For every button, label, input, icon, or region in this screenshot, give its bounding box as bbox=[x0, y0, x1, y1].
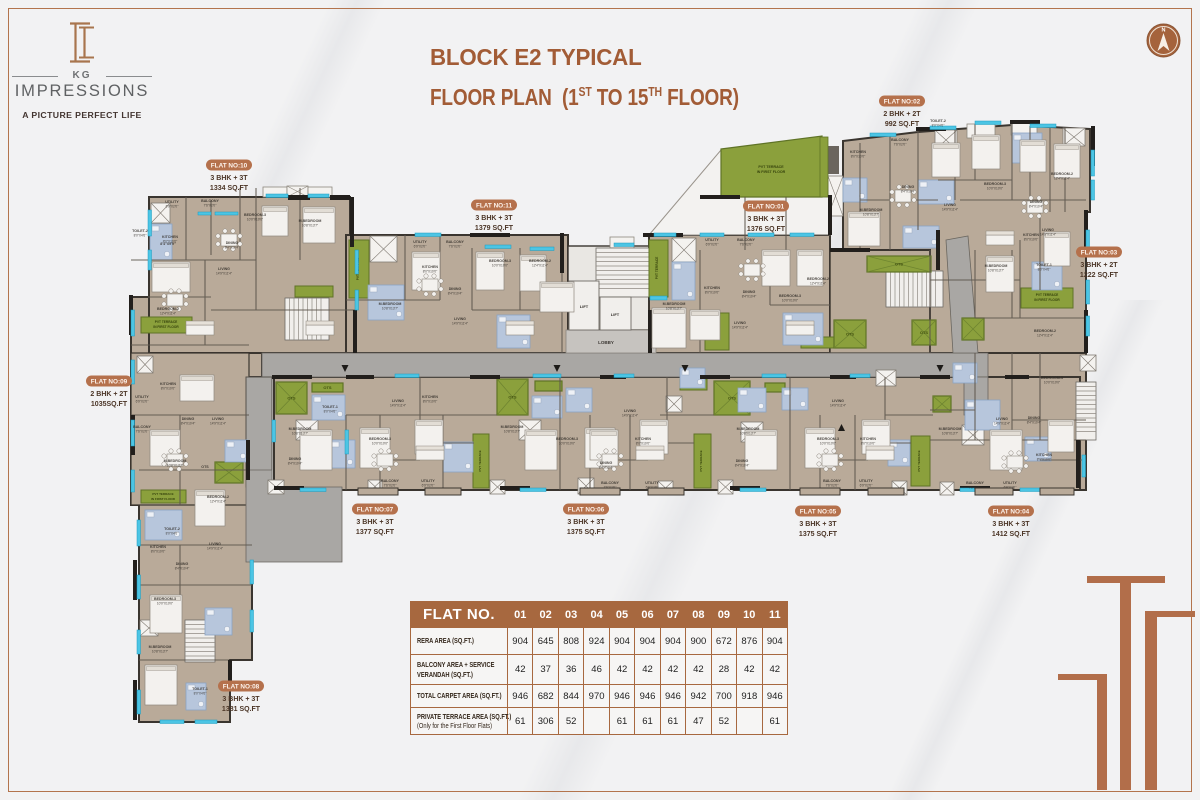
svg-text:6'9"X2'0": 6'9"X2'0" bbox=[706, 243, 719, 247]
svg-text:FLAT NO:11: FLAT NO:11 bbox=[476, 203, 513, 210]
svg-text:LIVING: LIVING bbox=[832, 399, 844, 403]
svg-text:DINING: DINING bbox=[736, 459, 749, 463]
svg-text:14'9"X11'4": 14'9"X11'4" bbox=[994, 422, 1010, 426]
svg-text:1379 SQ.FT: 1379 SQ.FT bbox=[475, 225, 514, 232]
svg-text:LOBBY: LOBBY bbox=[598, 340, 614, 345]
svg-text:8'4"X10'4": 8'4"X10'4" bbox=[1029, 205, 1043, 209]
svg-text:BEDROOM-2: BEDROOM-2 bbox=[207, 495, 229, 499]
svg-text:14'9"X11'4": 14'9"X11'4" bbox=[1040, 233, 1056, 237]
svg-text:BEDROOM-2: BEDROOM-2 bbox=[1034, 329, 1056, 333]
svg-text:7'6"X2'0": 7'6"X2'0" bbox=[826, 484, 839, 488]
svg-text:BALCONY: BALCONY bbox=[133, 425, 151, 429]
svg-text:LIVING: LIVING bbox=[996, 417, 1008, 421]
svg-text:12'4"X11'4": 12'4"X11'4" bbox=[532, 264, 548, 268]
svg-text:OTS: OTS bbox=[920, 330, 929, 335]
svg-text:PVT TERRACE: PVT TERRACE bbox=[655, 257, 659, 280]
svg-text:10'8"X13'7": 10'8"X13'7" bbox=[863, 213, 879, 217]
svg-text:8'4"X10'4": 8'4"X10'4" bbox=[175, 567, 189, 571]
svg-text:BEDROOM-3: BEDROOM-3 bbox=[489, 259, 511, 263]
svg-text:KITCHEN: KITCHEN bbox=[160, 382, 176, 386]
svg-text:6'9"X2'0": 6'9"X2'0" bbox=[136, 400, 149, 404]
svg-text:8'4"X10'4": 8'4"X10'4" bbox=[742, 295, 756, 299]
svg-text:PVT TERRACE: PVT TERRACE bbox=[1036, 293, 1059, 297]
svg-text:OTS: OTS bbox=[728, 396, 737, 401]
svg-text:10'0"X10'0": 10'0"X10'0" bbox=[372, 442, 388, 446]
svg-text:LIFT: LIFT bbox=[580, 304, 589, 309]
svg-text:6'9"X2'0": 6'9"X2'0" bbox=[422, 484, 435, 488]
svg-text:UTILITY: UTILITY bbox=[859, 479, 873, 483]
svg-text:1381 SQ.FT: 1381 SQ.FT bbox=[222, 706, 261, 713]
svg-text:M.BEDROOM: M.BEDROOM bbox=[737, 427, 760, 431]
svg-text:M.BEDROOM: M.BEDROOM bbox=[663, 302, 686, 306]
svg-text:14'9"X11'4": 14'9"X11'4" bbox=[452, 322, 468, 326]
svg-text:BEDROOM-2: BEDROOM-2 bbox=[807, 277, 829, 281]
svg-text:7'6"X2'0": 7'6"X2'0" bbox=[449, 245, 462, 249]
svg-text:UTILITY: UTILITY bbox=[135, 395, 149, 399]
svg-text:14'9"X11'4": 14'9"X11'4" bbox=[942, 208, 958, 212]
svg-text:BEDROOM-2: BEDROOM-2 bbox=[1051, 172, 1073, 176]
svg-text:10'0"X10'0": 10'0"X10'0" bbox=[247, 218, 263, 222]
svg-text:8'4"X10'4": 8'4"X10'4" bbox=[735, 464, 749, 468]
svg-text:FLAT NO:03: FLAT NO:03 bbox=[1081, 250, 1118, 257]
svg-text:KITCHEN: KITCHEN bbox=[162, 235, 178, 239]
svg-text:14'9"X11'4": 14'9"X11'4" bbox=[390, 404, 406, 408]
svg-text:BALCONY: BALCONY bbox=[201, 199, 219, 203]
svg-text:TOILET-1: TOILET-1 bbox=[192, 687, 208, 691]
svg-text:FLAT NO:04: FLAT NO:04 bbox=[993, 509, 1030, 516]
svg-text:LIVING: LIVING bbox=[392, 399, 404, 403]
svg-text:KITCHEN: KITCHEN bbox=[635, 437, 651, 441]
svg-text:8'0"X4'6": 8'0"X4'6" bbox=[1038, 268, 1051, 272]
svg-text:LIFT: LIFT bbox=[611, 312, 620, 317]
svg-text:BEDROOM-3: BEDROOM-3 bbox=[369, 437, 391, 441]
svg-text:12'4"X11'4": 12'4"X11'4" bbox=[810, 282, 826, 286]
svg-text:M.BEDROOM: M.BEDROOM bbox=[501, 425, 524, 429]
svg-text:LIVING: LIVING bbox=[1042, 228, 1054, 232]
svg-text:14'9"X11'4": 14'9"X11'4" bbox=[830, 404, 846, 408]
svg-text:IN FIRST FLOOR: IN FIRST FLOOR bbox=[1034, 298, 1060, 302]
svg-text:3 BHK + 3T: 3 BHK + 3T bbox=[475, 215, 513, 222]
svg-text:BEDROOM-3: BEDROOM-3 bbox=[244, 213, 266, 217]
svg-text:8'0"X10'0": 8'0"X10'0" bbox=[861, 442, 875, 446]
svg-text:PVT TERRACE: PVT TERRACE bbox=[152, 492, 173, 496]
svg-text:10'0"X10'0": 10'0"X10'0" bbox=[820, 442, 836, 446]
svg-text:10'8"X13'7": 10'8"X13'7" bbox=[740, 432, 756, 436]
svg-text:M.BEDROOM: M.BEDROOM bbox=[379, 302, 402, 306]
svg-text:8'0"X10'0": 8'0"X10'0" bbox=[705, 291, 719, 295]
svg-text:OTS: OTS bbox=[508, 395, 517, 400]
svg-text:M.BEDROOM: M.BEDROOM bbox=[939, 427, 962, 431]
svg-text:BALCONY: BALCONY bbox=[966, 481, 984, 485]
svg-text:7'6"X2'0": 7'6"X2'0" bbox=[136, 430, 149, 434]
svg-text:LIVING: LIVING bbox=[624, 409, 636, 413]
svg-text:DINING: DINING bbox=[226, 241, 239, 245]
svg-text:IN FIRST FLOOR: IN FIRST FLOOR bbox=[153, 325, 179, 329]
svg-text:DINING: DINING bbox=[743, 290, 756, 294]
svg-text:KITCHEN: KITCHEN bbox=[422, 395, 438, 399]
svg-text:OTS: OTS bbox=[287, 396, 296, 401]
svg-text:14'9"X11'4": 14'9"X11'4" bbox=[210, 422, 226, 426]
svg-text:10'0"X10'0": 10'0"X10'0" bbox=[157, 602, 173, 606]
svg-text:3 BHK + 3T: 3 BHK + 3T bbox=[992, 521, 1030, 528]
svg-text:10'8"X13'7": 10'8"X13'7" bbox=[504, 430, 520, 434]
svg-text:M.BEDROOM: M.BEDROOM bbox=[860, 208, 883, 212]
svg-text:IN FIRST FLOOR: IN FIRST FLOOR bbox=[757, 170, 786, 174]
svg-text:KITCHEN: KITCHEN bbox=[704, 286, 720, 290]
svg-text:7'6"X2'0": 7'6"X2'0" bbox=[204, 204, 217, 208]
svg-text:UTILITY: UTILITY bbox=[165, 200, 179, 204]
svg-text:UTILITY: UTILITY bbox=[413, 240, 427, 244]
svg-text:8'0"X10'0": 8'0"X10'0" bbox=[161, 387, 175, 391]
svg-text:10'8"X13'7": 10'8"X13'7" bbox=[302, 224, 318, 228]
svg-text:DINING: DINING bbox=[600, 461, 613, 465]
svg-text:14'9"X11'4": 14'9"X11'4" bbox=[207, 547, 223, 551]
svg-text:IN FIRST FLOOR: IN FIRST FLOOR bbox=[151, 497, 176, 501]
svg-text:1377 SQ.FT: 1377 SQ.FT bbox=[356, 529, 395, 536]
svg-text:7'6"X2'0": 7'6"X2'0" bbox=[894, 143, 907, 147]
svg-text:10'0"X10'0": 10'0"X10'0" bbox=[492, 264, 508, 268]
svg-text:6'9"X2'0": 6'9"X2'0" bbox=[166, 205, 179, 209]
svg-text:8'0"X4'6": 8'0"X4'6" bbox=[932, 124, 945, 128]
svg-text:10'8"X13'7": 10'8"X13'7" bbox=[152, 650, 168, 654]
svg-text:BALCONY: BALCONY bbox=[823, 479, 841, 483]
svg-text:3 BHK + 3T: 3 BHK + 3T bbox=[222, 696, 260, 703]
svg-text:BALCONY: BALCONY bbox=[737, 238, 755, 242]
svg-text:FLAT NO:07: FLAT NO:07 bbox=[357, 507, 394, 514]
svg-text:8'4"X10'4": 8'4"X10'4" bbox=[901, 190, 915, 194]
svg-text:6'9"X2'0": 6'9"X2'0" bbox=[414, 245, 427, 249]
svg-text:2 BHK + 2T: 2 BHK + 2T bbox=[883, 111, 921, 118]
svg-text:UTILITY: UTILITY bbox=[705, 238, 719, 242]
svg-text:BALCONY: BALCONY bbox=[446, 240, 464, 244]
svg-text:10'8"X13'7": 10'8"X13'7" bbox=[942, 432, 958, 436]
svg-text:8'4"X10'4": 8'4"X10'4" bbox=[1027, 421, 1041, 425]
svg-text:M.BEDROOM: M.BEDROOM bbox=[299, 219, 322, 223]
svg-text:M.BEDROOM: M.BEDROOM bbox=[985, 264, 1008, 268]
svg-text:LIVING: LIVING bbox=[209, 542, 221, 546]
svg-text:8'0"X10'0": 8'0"X10'0" bbox=[151, 550, 165, 554]
svg-text:DINING: DINING bbox=[1030, 200, 1043, 204]
svg-text:UTILITY: UTILITY bbox=[421, 479, 435, 483]
svg-text:DINING: DINING bbox=[1028, 416, 1041, 420]
svg-text:KITCHEN: KITCHEN bbox=[1023, 233, 1039, 237]
svg-text:KITCHEN: KITCHEN bbox=[422, 265, 438, 269]
svg-text:1375 SQ.FT: 1375 SQ.FT bbox=[567, 529, 606, 536]
svg-text:FLAT NO:09: FLAT NO:09 bbox=[91, 379, 128, 386]
svg-text:OTS: OTS bbox=[201, 465, 209, 469]
svg-text:8'4"X10'4": 8'4"X10'4" bbox=[288, 462, 302, 466]
svg-text:DINING: DINING bbox=[289, 457, 302, 461]
svg-text:10'0"X10'0": 10'0"X10'0" bbox=[987, 187, 1003, 191]
svg-text:2 BHK + 2T: 2 BHK + 2T bbox=[90, 391, 128, 398]
svg-text:8'4"X9'9": 8'4"X9'9" bbox=[160, 242, 176, 246]
svg-text:FLAT NO:08: FLAT NO:08 bbox=[223, 684, 260, 691]
svg-text:1375 SQ.FT: 1375 SQ.FT bbox=[799, 531, 838, 538]
svg-text:8'0"X4'6": 8'0"X4'6" bbox=[134, 234, 147, 238]
svg-text:FLAT NO:06: FLAT NO:06 bbox=[568, 507, 605, 514]
svg-text:FLAT NO:01: FLAT NO:01 bbox=[748, 204, 785, 211]
svg-text:10'0"X10'0": 10'0"X10'0" bbox=[559, 442, 575, 446]
svg-text:3 BHK + 3T: 3 BHK + 3T bbox=[799, 521, 837, 528]
svg-text:KITCHEN: KITCHEN bbox=[850, 150, 866, 154]
svg-text:M.BEDROOM: M.BEDROOM bbox=[149, 645, 172, 649]
svg-text:992 SQ.FT: 992 SQ.FT bbox=[885, 121, 920, 128]
svg-text:10'8"X13'7": 10'8"X13'7" bbox=[988, 269, 1004, 273]
svg-text:LIVING: LIVING bbox=[218, 267, 230, 271]
svg-text:FLAT NO:02: FLAT NO:02 bbox=[884, 99, 921, 106]
svg-text:OTS: OTS bbox=[323, 385, 332, 390]
svg-text:KITCHEN: KITCHEN bbox=[860, 437, 876, 441]
svg-text:10'8"X13'7": 10'8"X13'7" bbox=[666, 307, 682, 311]
svg-text:8'0"X10'0": 8'0"X10'0" bbox=[423, 400, 437, 404]
svg-text:1412 SQ.FT: 1412 SQ.FT bbox=[992, 531, 1031, 538]
svg-text:OTS: OTS bbox=[846, 332, 855, 337]
svg-text:LIVING: LIVING bbox=[454, 317, 466, 321]
svg-text:6'9"X2'0": 6'9"X2'0" bbox=[860, 484, 873, 488]
svg-text:FLAT NO:10: FLAT NO:10 bbox=[211, 163, 248, 170]
svg-text:BALCONY: BALCONY bbox=[601, 481, 619, 485]
svg-text:10'8"X13'7": 10'8"X13'7" bbox=[382, 307, 398, 311]
svg-text:PVT TERRACE: PVT TERRACE bbox=[699, 450, 703, 471]
svg-text:UTILITY: UTILITY bbox=[645, 481, 659, 485]
svg-text:14'9"X11'4": 14'9"X11'4" bbox=[732, 326, 748, 330]
svg-text:LIVING: LIVING bbox=[944, 203, 956, 207]
svg-text:PVT TERRACE: PVT TERRACE bbox=[917, 450, 921, 471]
svg-text:DINING: DINING bbox=[176, 562, 189, 566]
svg-text:14'9"X11'4": 14'9"X11'4" bbox=[216, 272, 232, 276]
svg-text:3 BHK + 3T: 3 BHK + 3T bbox=[356, 519, 394, 526]
svg-text:12'4"X11'4": 12'4"X11'4" bbox=[1037, 334, 1053, 338]
svg-text:BALCONY: BALCONY bbox=[891, 138, 909, 142]
svg-text:12'4"X11'4": 12'4"X11'4" bbox=[1054, 177, 1070, 181]
svg-text:BEDROOM-3: BEDROOM-3 bbox=[154, 597, 176, 601]
svg-text:FLAT NO:05: FLAT NO:05 bbox=[800, 509, 837, 516]
svg-text:8'4"X10'4": 8'4"X10'4" bbox=[181, 422, 195, 426]
svg-text:10'8"X13'7": 10'8"X13'7" bbox=[167, 464, 183, 468]
svg-text:7'6"X2'0": 7'6"X2'0" bbox=[740, 243, 753, 247]
svg-text:10'8"X13'7": 10'8"X13'7" bbox=[292, 432, 308, 436]
svg-text:BEDROOM-3: BEDROOM-3 bbox=[984, 182, 1006, 186]
svg-text:8'0"X10'0": 8'0"X10'0" bbox=[851, 155, 865, 159]
svg-text:KITCHEN: KITCHEN bbox=[1036, 453, 1052, 457]
svg-text:DINING: DINING bbox=[902, 185, 915, 189]
svg-text:1222 SQ.FT: 1222 SQ.FT bbox=[1080, 272, 1119, 279]
svg-text:12'4"X11'4": 12'4"X11'4" bbox=[210, 500, 226, 504]
svg-text:M.BEDROOM: M.BEDROOM bbox=[164, 459, 187, 463]
svg-text:8'0"X4'6": 8'0"X4'6" bbox=[194, 692, 207, 696]
svg-text:8'4"X10'4": 8'4"X10'4" bbox=[448, 292, 462, 296]
svg-text:OTS: OTS bbox=[895, 262, 904, 267]
svg-text:3 BHK + 3T: 3 BHK + 3T bbox=[747, 216, 785, 223]
svg-text:8'0"X10'0": 8'0"X10'0" bbox=[1024, 238, 1038, 242]
svg-text:BEDROOM-3: BEDROOM-3 bbox=[779, 294, 801, 298]
svg-text:LIVING: LIVING bbox=[734, 321, 746, 325]
svg-text:DINING: DINING bbox=[449, 287, 462, 291]
svg-text:8'4"X10'4": 8'4"X10'4" bbox=[225, 246, 239, 250]
svg-text:TOILET-1: TOILET-1 bbox=[1036, 263, 1052, 267]
svg-text:3 BHK + 3T: 3 BHK + 3T bbox=[210, 175, 248, 182]
svg-text:UTILITY: UTILITY bbox=[1003, 481, 1017, 485]
svg-text:BEDROOM-2: BEDROOM-2 bbox=[529, 259, 551, 263]
svg-text:BEDROOM-3: BEDROOM-3 bbox=[1041, 376, 1063, 380]
svg-text:PVT TERRACE: PVT TERRACE bbox=[478, 450, 482, 471]
svg-text:DINING: DINING bbox=[182, 417, 195, 421]
svg-text:PVT TERRACE: PVT TERRACE bbox=[155, 320, 178, 324]
svg-text:12'4"X11'4": 12'4"X11'4" bbox=[160, 312, 176, 316]
svg-text:1376 SQ.FT: 1376 SQ.FT bbox=[747, 226, 786, 233]
svg-text:8'0"X4'6": 8'0"X4'6" bbox=[166, 532, 179, 536]
svg-text:PVT TERRACE: PVT TERRACE bbox=[758, 165, 784, 169]
svg-text:LIVING: LIVING bbox=[212, 417, 224, 421]
svg-text:TOILET-2: TOILET-2 bbox=[164, 527, 180, 531]
svg-text:KITCHEN: KITCHEN bbox=[150, 545, 166, 549]
svg-text:1035SQ.FT: 1035SQ.FT bbox=[91, 401, 128, 408]
svg-text:BEDROOM-3: BEDROOM-3 bbox=[556, 437, 578, 441]
svg-text:M.BEDROOM: M.BEDROOM bbox=[289, 427, 312, 431]
svg-text:8'0"X10'0": 8'0"X10'0" bbox=[423, 270, 437, 274]
svg-text:TOILET-2: TOILET-2 bbox=[132, 229, 148, 233]
svg-text:10'0"X10'0": 10'0"X10'0" bbox=[1044, 381, 1060, 385]
svg-text:8'0"X4'6": 8'0"X4'6" bbox=[324, 410, 337, 414]
svg-text:3 BHK + 2T: 3 BHK + 2T bbox=[1080, 262, 1118, 269]
svg-text:TOILET-1: TOILET-1 bbox=[322, 405, 338, 409]
svg-text:14'9"X11'4": 14'9"X11'4" bbox=[622, 414, 638, 418]
svg-text:BEDROOM-3: BEDROOM-3 bbox=[817, 437, 839, 441]
svg-text:8'4"X10'4": 8'4"X10'4" bbox=[599, 466, 613, 470]
svg-text:8'0"X10'0": 8'0"X10'0" bbox=[1037, 458, 1051, 462]
svg-text:BEDROOM-2: BEDROOM-2 bbox=[157, 307, 179, 311]
svg-text:BALCONY: BALCONY bbox=[381, 479, 399, 483]
svg-text:7'6"X2'0": 7'6"X2'0" bbox=[384, 484, 397, 488]
svg-text:1334 SQ.FT: 1334 SQ.FT bbox=[210, 185, 249, 192]
svg-text:8'0"X10'0": 8'0"X10'0" bbox=[636, 442, 650, 446]
svg-text:TOILET-2: TOILET-2 bbox=[930, 119, 946, 123]
svg-text:10'0"X10'0": 10'0"X10'0" bbox=[782, 299, 798, 303]
svg-text:3 BHK + 3T: 3 BHK + 3T bbox=[567, 519, 605, 526]
